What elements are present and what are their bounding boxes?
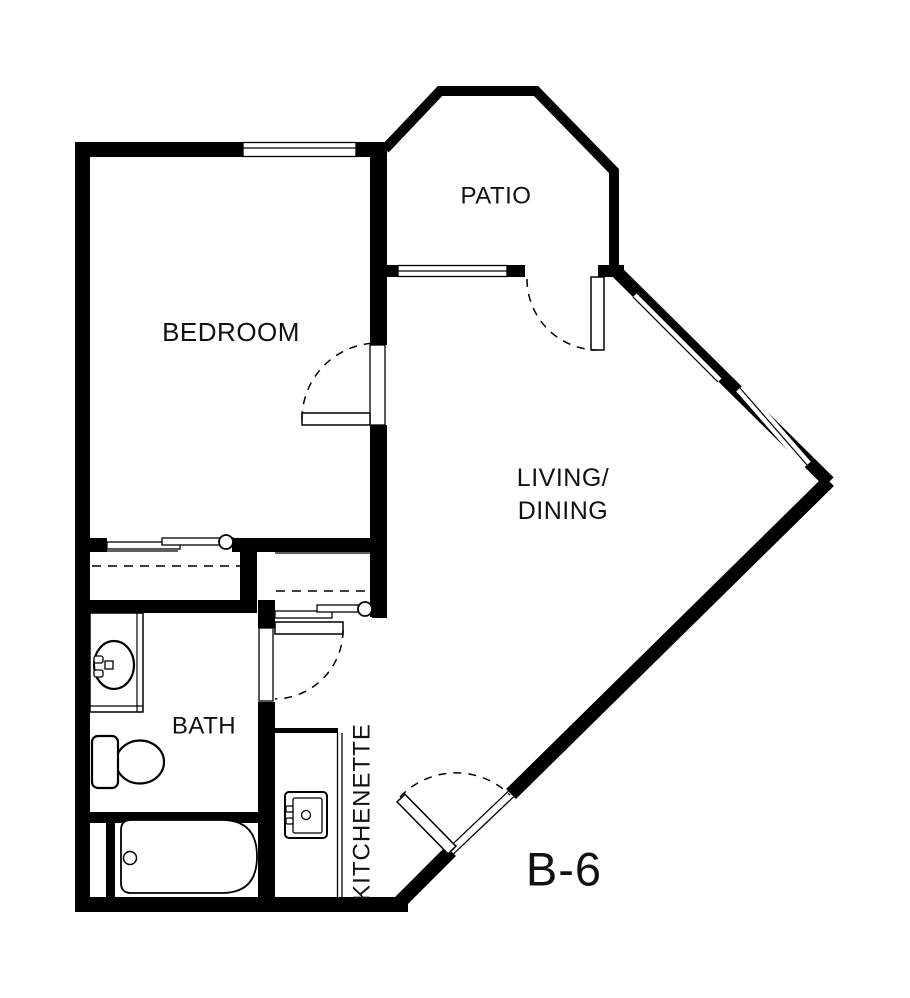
patio-sill-wall-mid: [507, 265, 525, 277]
wall-bedroom-right-lower: [370, 425, 387, 617]
bedroom-label: BEDROOM: [162, 316, 300, 350]
entry-door-leaf: [397, 794, 456, 854]
bath-fixtures: [90, 613, 257, 893]
patio-door: [527, 277, 604, 350]
kitchenette-fixtures: [274, 728, 342, 897]
entry-threshold-outer: [454, 797, 514, 854]
bedroom-door-leaf: [302, 413, 370, 425]
wall-bedroom-bottom-right: [232, 538, 387, 552]
living-dining-label-line1: LIVING/: [517, 462, 609, 495]
interior-walls: [75, 142, 387, 897]
vanity-sink-icon: [94, 641, 134, 689]
bath-label: BATH: [172, 710, 236, 741]
wall-bath-east-bottom: [258, 702, 275, 897]
living-dining-label: LIVING/ DINING: [517, 462, 609, 528]
bedroom-door-jamb: [370, 345, 385, 425]
patio-door-leaf: [591, 277, 604, 350]
bedroom-door-swing-arc: [302, 343, 378, 419]
entry-closet: [275, 553, 378, 618]
bath-door: [259, 622, 343, 701]
wall-niche-stub: [106, 823, 115, 897]
patio-wall: [385, 91, 614, 266]
tub-drain-icon: [124, 852, 137, 865]
floor-plan: BEDROOM PATIO LIVING/ DINING BATH KITCHE…: [0, 0, 910, 998]
living-window-upper: [633, 297, 718, 382]
bathtub-icon: [121, 820, 257, 893]
toilet-icon: [92, 736, 164, 788]
entry-door: [397, 773, 513, 854]
kitchenette-sink-icon: [285, 792, 327, 838]
door-pull-icon: [358, 602, 372, 616]
bedroom-window: [243, 143, 356, 157]
bedroom-closet: [83, 535, 255, 566]
bath-door-jamb: [259, 628, 273, 701]
living-window-lower: [740, 388, 807, 465]
wall-bath-east-top: [258, 600, 275, 628]
kitchenette-label: KITCHENETTE: [346, 723, 377, 901]
bath-door-swing-arc: [275, 630, 343, 699]
floor-plan-linework: [0, 0, 910, 998]
kitchenette-counter-top-edge: [274, 728, 338, 733]
entry-door-swing-arc: [400, 773, 510, 797]
bedroom-door: [302, 343, 385, 425]
wall-closet-right-stub: [372, 600, 387, 618]
patio-door-swing-arc: [527, 279, 597, 350]
wall-bedroom-bottom-left: [75, 538, 107, 552]
wall-bedroom-right-upper: [370, 142, 387, 345]
wall-closet-bottom: [75, 600, 257, 613]
unit-number-label: B-6: [526, 838, 602, 899]
entry-threshold-inner: [448, 791, 508, 848]
wall-diagonal-lower-b: [399, 851, 451, 903]
door-pull-icon: [219, 535, 233, 549]
wall-left: [75, 142, 90, 912]
diagonal-walls: [399, 271, 829, 903]
patio-window: [398, 266, 507, 277]
patio-label: PATIO: [461, 180, 532, 211]
living-dining-label-line2: DINING: [517, 495, 609, 528]
bath-door-leaf: [275, 622, 343, 634]
